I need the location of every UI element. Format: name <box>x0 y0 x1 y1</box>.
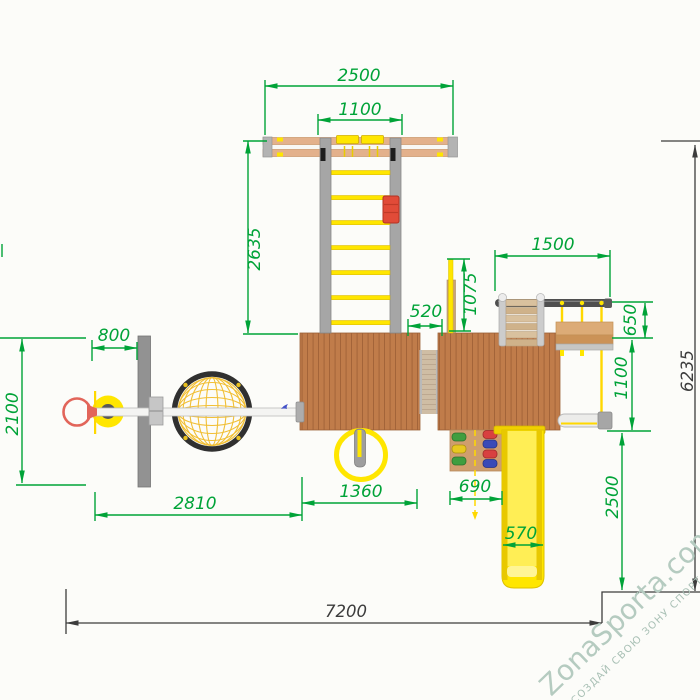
dim-frame-depth-label: 1100 <box>612 356 632 399</box>
left-play-arm <box>64 336 305 487</box>
dim-swing-span: 1500 <box>495 235 610 297</box>
basketball-ring <box>64 399 91 426</box>
dim-total-width-label: 7200 <box>325 602 367 621</box>
left-platform <box>300 333 420 430</box>
drawing-canvas: 2500 1100 2635 1500 1075 <box>0 0 700 700</box>
overhead-beam-assembly <box>263 136 458 158</box>
dim-total-depth-label: 6235 <box>678 350 697 392</box>
dim-slide-width-label: 570 <box>505 524 537 544</box>
climb-hold-green <box>452 457 466 465</box>
swedish-ladder <box>320 138 401 333</box>
bridge-deck <box>420 350 438 414</box>
slide <box>494 426 545 588</box>
ladder-post-right <box>390 138 401 333</box>
beam-rail-back <box>263 150 457 157</box>
slide-rail-left <box>502 430 508 580</box>
swing-frame-leg <box>558 412 612 429</box>
climb-centerline-arrow <box>472 512 478 520</box>
swing-seat <box>556 322 613 356</box>
dim-platform-span-label: 1360 <box>339 482 382 502</box>
dim-frame-depth: 1100 <box>607 340 651 431</box>
rope-anchor <box>599 301 603 305</box>
post-bracket <box>391 148 396 161</box>
rope-anchor <box>560 301 564 305</box>
ladder-post-left <box>320 138 331 333</box>
playground-drawing: 2500 1100 2635 1500 1075 <box>0 0 700 700</box>
beam-fastener <box>277 153 283 157</box>
top-rung <box>337 136 359 144</box>
beam-rail-front <box>263 138 457 145</box>
climb-hold-yellow <box>452 445 466 453</box>
dim-swing-span-label: 1500 <box>531 235 574 255</box>
beam-connector <box>149 397 163 411</box>
stair-ramp <box>499 294 545 347</box>
watermark: ZonaSporta.com СОЗДАЙ СВОЮ ЗОНУ СПОРТА <box>533 517 700 700</box>
dim-hoop-offset-label: 800 <box>98 326 130 346</box>
top-rung <box>362 136 384 144</box>
dim-arm-span: 2810 <box>95 492 302 521</box>
right-platform <box>438 333 560 430</box>
beam-cap-left <box>263 137 272 157</box>
dim-bridge-gap-label: 520 <box>410 302 442 322</box>
dim-board-length: 2100 <box>0 338 86 485</box>
dim-slide-width: 570 <box>503 524 543 545</box>
arm-beam <box>90 408 302 416</box>
fireman-pole <box>337 429 386 480</box>
yellow-pole <box>449 260 454 334</box>
ladder-rungs <box>332 171 391 325</box>
post-bracket <box>321 148 326 161</box>
dim-total-width: 7200 <box>66 589 602 634</box>
dim-swing-depth: 650 <box>612 302 653 338</box>
slide-sheen <box>507 566 537 577</box>
dim-slide-run: 2500 <box>603 433 623 590</box>
dim-ladder-span-label: 1100 <box>338 100 381 120</box>
dim-pole-offset-label: 1075 <box>461 272 481 315</box>
dim-hoop-offset: 800 <box>92 326 137 361</box>
rope-anchor <box>580 301 584 305</box>
dim-slide-run-label: 2500 <box>603 475 623 518</box>
dim-swing-depth-label: 650 <box>621 304 641 336</box>
red-mount-plate <box>383 196 399 223</box>
dim-platform-span: 1360 <box>302 477 417 521</box>
beam-cap-right <box>448 137 458 157</box>
slide-channel <box>508 431 537 566</box>
climb-hold-red <box>483 450 497 458</box>
beam-attach-block <box>296 402 304 422</box>
dim-board-length-label: 2100 <box>3 392 23 435</box>
dim-wall-span-label: 690 <box>459 477 491 497</box>
dim-ladder-length: 2635 <box>243 141 298 334</box>
swing-beam-cap <box>604 299 612 309</box>
climb-hold-blue <box>483 440 497 448</box>
beam-fastener <box>277 138 283 142</box>
dim-arm-span-label: 2810 <box>173 494 216 514</box>
platform-towers <box>300 333 560 430</box>
bridge-rail-left <box>420 350 423 414</box>
slide-rail-right <box>537 430 543 580</box>
dim-ladder-length-label: 2635 <box>245 227 265 270</box>
dim-bridge-gap: 520 <box>408 302 442 336</box>
pole-stripe <box>358 430 362 457</box>
dim-wall-span: 690 <box>450 477 502 505</box>
climb-hold-blue <box>483 460 497 468</box>
beam-fastener <box>437 153 443 157</box>
climb-hold-green <box>452 433 466 441</box>
beam-connector <box>149 412 163 426</box>
climbing-wall <box>450 430 503 520</box>
dim-beam-span-label: 2500 <box>337 66 380 86</box>
dim-ladder-span: 1100 <box>318 100 402 135</box>
beam-fastener <box>437 138 443 142</box>
access-pole <box>447 260 456 334</box>
